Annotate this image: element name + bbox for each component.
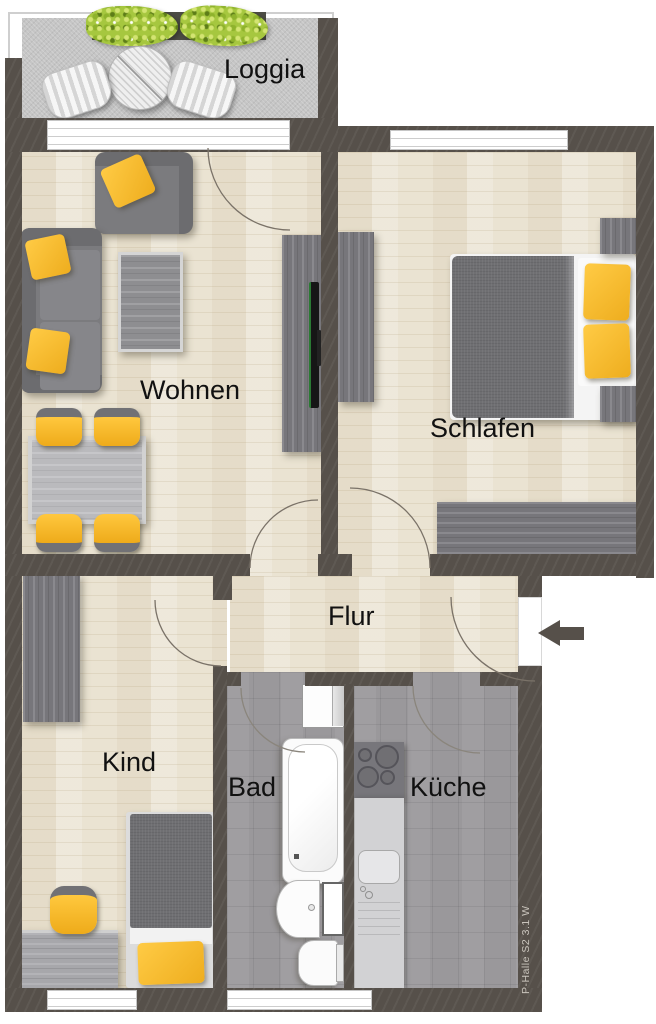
- desk: [20, 930, 118, 988]
- plan-annotation: P-Halle S2 3.1 W: [520, 842, 536, 994]
- nightstand: [600, 218, 636, 254]
- stove-burner-icon: [357, 766, 379, 788]
- washbasin-faucet-icon: [308, 904, 315, 911]
- window-bad-kueche: [227, 990, 372, 1010]
- room-label-flur: Flur: [328, 603, 375, 630]
- wall-flur-bottom-c: [480, 672, 518, 686]
- wall-kind-east: [213, 666, 227, 990]
- dining-chair: [94, 408, 140, 446]
- room-label-schlafen: Schlafen: [430, 415, 535, 442]
- floorplan: Loggia Wohnen Schlafen Flur Kind Bad Küc…: [0, 0, 656, 1024]
- stove-burner-icon: [358, 748, 372, 762]
- wall-bad-kueche: [344, 684, 354, 990]
- stove-burner-icon: [375, 745, 399, 769]
- stove: [354, 742, 404, 798]
- dining-table: [28, 436, 146, 524]
- wall-kind-stub: [213, 554, 232, 600]
- wall-right: [636, 126, 654, 578]
- wall-loggia-right: [318, 18, 338, 130]
- bathtub-basin: [288, 744, 338, 872]
- window-schlafen: [390, 130, 568, 150]
- washing-machine-door: [332, 686, 344, 726]
- dining-chair: [36, 514, 82, 552]
- wall-left: [5, 58, 22, 1012]
- wardrobe-low: [437, 502, 636, 558]
- room-label-bad: Bad: [228, 774, 276, 801]
- stove-burner-icon: [380, 770, 395, 785]
- room-label-kind: Kind: [102, 749, 156, 776]
- single-bed-blanket: [130, 814, 212, 928]
- bed-pillow: [137, 941, 204, 985]
- wall-flur-bottom-b: [305, 672, 413, 686]
- kitchen-counter: [354, 798, 404, 988]
- sink-drainer: [358, 902, 400, 940]
- toilet-tank: [336, 944, 344, 982]
- room-label-loggia: Loggia: [224, 56, 305, 83]
- room-label-wohnen: Wohnen: [140, 377, 240, 404]
- double-bed-blanket: [452, 256, 574, 418]
- entrance-arrow-icon: [538, 620, 560, 646]
- nightstand: [600, 386, 636, 422]
- bed-pillow: [583, 263, 631, 321]
- sink-faucet-icon: [365, 891, 373, 899]
- window-kind: [47, 990, 137, 1010]
- wardrobe: [338, 232, 374, 402]
- bathtub-drain: [294, 854, 299, 859]
- entrance-arrow-shaft: [558, 627, 584, 640]
- sofa-pillow: [24, 233, 71, 280]
- plant-icon: [86, 6, 178, 46]
- wall-center: [321, 152, 338, 576]
- dining-chair: [94, 514, 140, 552]
- wall-flur-bottom-a: [227, 672, 241, 686]
- bath-cabinet: [322, 882, 344, 936]
- toilet-bowl: [298, 940, 338, 986]
- bed-pillow: [583, 323, 631, 379]
- wall-mid-east: [430, 554, 636, 576]
- wardrobe: [23, 574, 80, 722]
- desk-chair: [50, 886, 97, 934]
- sink-faucet-icon: [360, 886, 366, 892]
- sofa-pillow: [25, 327, 70, 374]
- window-wohnen-loggia: [47, 120, 290, 150]
- dining-chair: [36, 408, 82, 446]
- loggia-round-table: [108, 46, 172, 110]
- wall-center-cap: [318, 554, 352, 576]
- wall-entry-top: [518, 576, 542, 597]
- room-label-kueche: Küche: [410, 774, 487, 801]
- coffee-table: [118, 252, 183, 352]
- kitchen-sink: [358, 850, 400, 884]
